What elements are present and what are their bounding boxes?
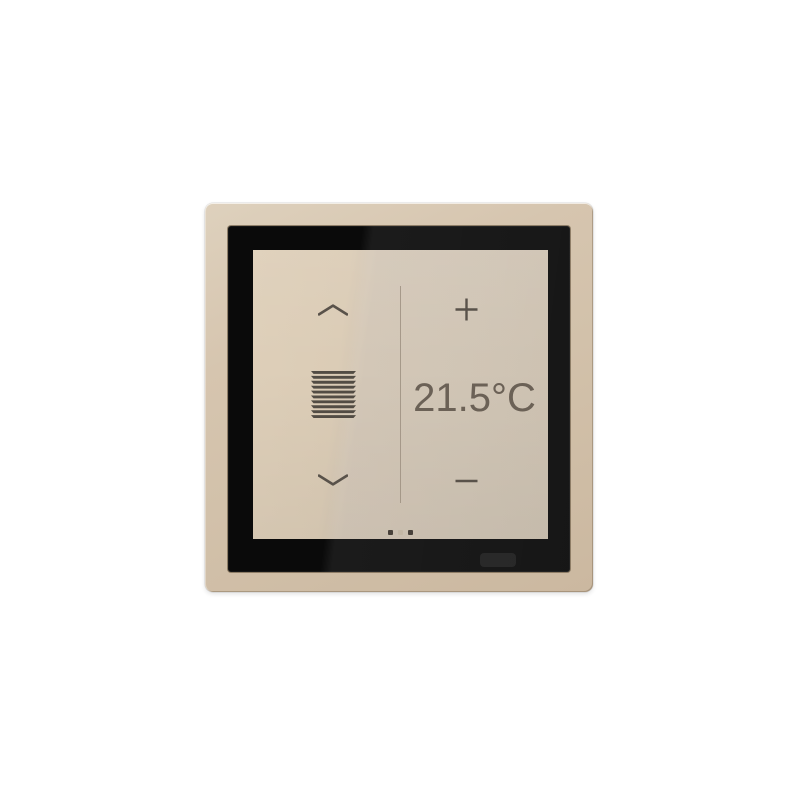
smart-switch-device: 21.5°C <box>205 203 593 592</box>
screen-bezel: 21.5°C <box>228 226 570 572</box>
temperature-readout: 21.5°C <box>401 376 548 420</box>
blinds-stop-button[interactable] <box>253 346 400 442</box>
device-frame: 21.5°C <box>205 203 593 592</box>
touchscreen: 21.5°C <box>253 250 548 539</box>
temperature-decrease-button[interactable] <box>401 442 548 539</box>
temperature-increase-button[interactable] <box>401 250 548 346</box>
page-background: { "device": { "type": "knx-room-controll… <box>0 0 800 800</box>
blinds-down-button[interactable] <box>253 442 400 539</box>
proximity-sensor-window <box>480 553 516 567</box>
blinds-up-button[interactable] <box>253 250 400 346</box>
